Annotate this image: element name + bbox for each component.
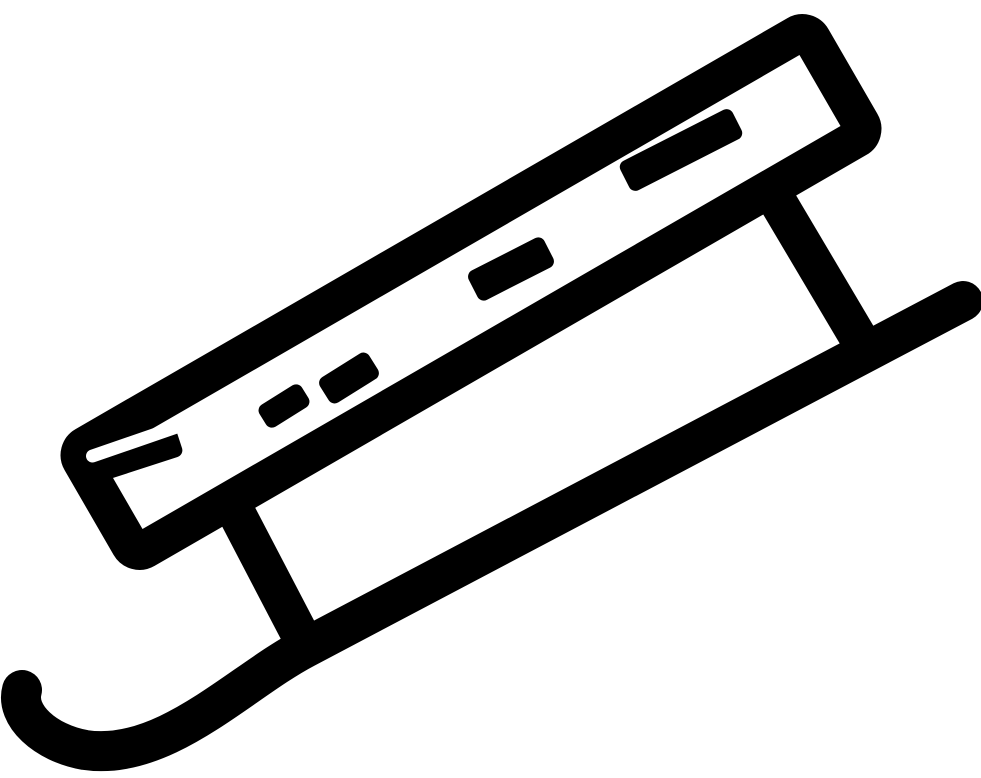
deck-slat-small-lower	[256, 382, 312, 431]
sled-leg-left	[236, 512, 308, 650]
deck-slat-middle	[466, 235, 557, 303]
sled-leg-right	[775, 197, 868, 354]
icon-canvas	[0, 0, 981, 778]
sled-icon	[0, 0, 981, 778]
sled-deck-outline	[76, 29, 867, 555]
